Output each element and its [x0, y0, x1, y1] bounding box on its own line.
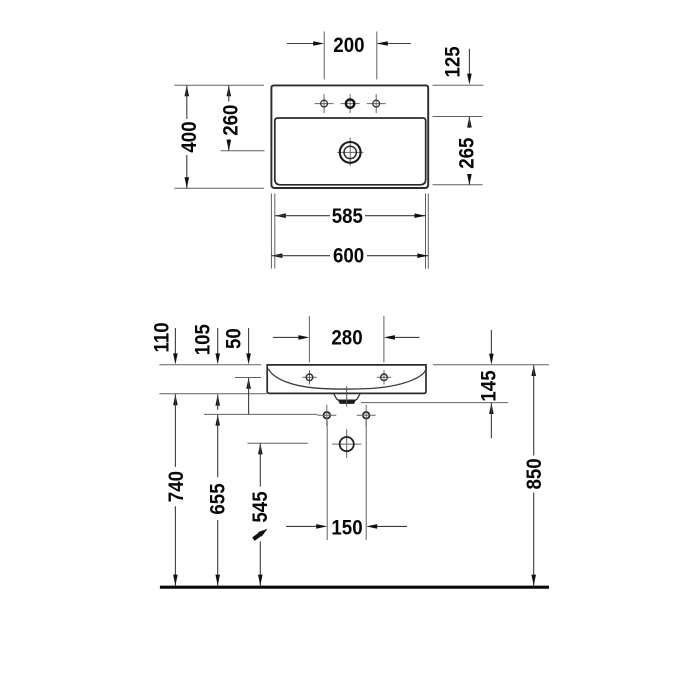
svg-text:655: 655: [207, 483, 230, 514]
svg-text:125: 125: [441, 46, 464, 77]
svg-text:150: 150: [331, 516, 362, 539]
svg-text:50: 50: [222, 328, 245, 349]
svg-text:105: 105: [191, 324, 214, 355]
svg-text:265: 265: [455, 138, 478, 169]
svg-text:145: 145: [477, 370, 500, 401]
svg-text:260: 260: [219, 105, 242, 136]
svg-text:740: 740: [165, 471, 188, 502]
svg-text:400: 400: [178, 121, 201, 152]
svg-text:280: 280: [331, 326, 362, 349]
svg-text:545: 545: [249, 491, 272, 522]
svg-text:200: 200: [333, 34, 364, 57]
svg-text:850: 850: [523, 458, 546, 489]
svg-text:600: 600: [333, 245, 364, 268]
svg-text:585: 585: [332, 205, 363, 228]
svg-text:110: 110: [150, 322, 173, 352]
